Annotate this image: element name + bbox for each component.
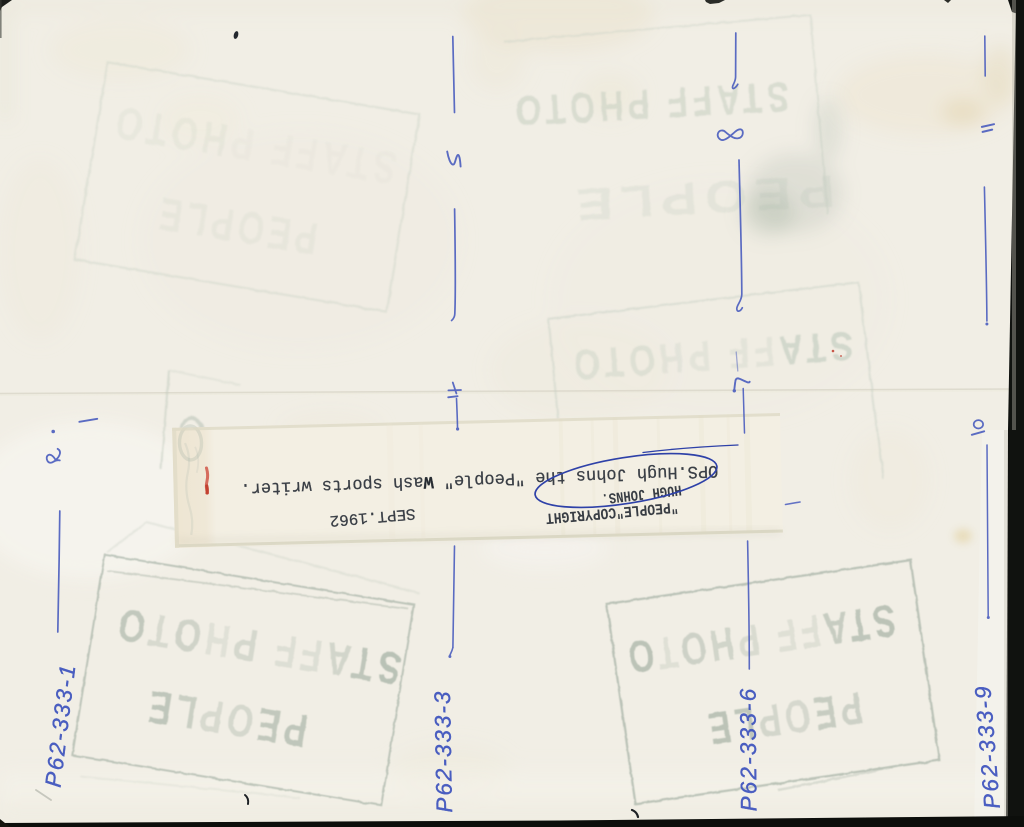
svg-text:P62-333-6: P62-333-6 bbox=[735, 687, 761, 812]
svg-text:P62-333-3: P62-333-3 bbox=[430, 689, 457, 812]
